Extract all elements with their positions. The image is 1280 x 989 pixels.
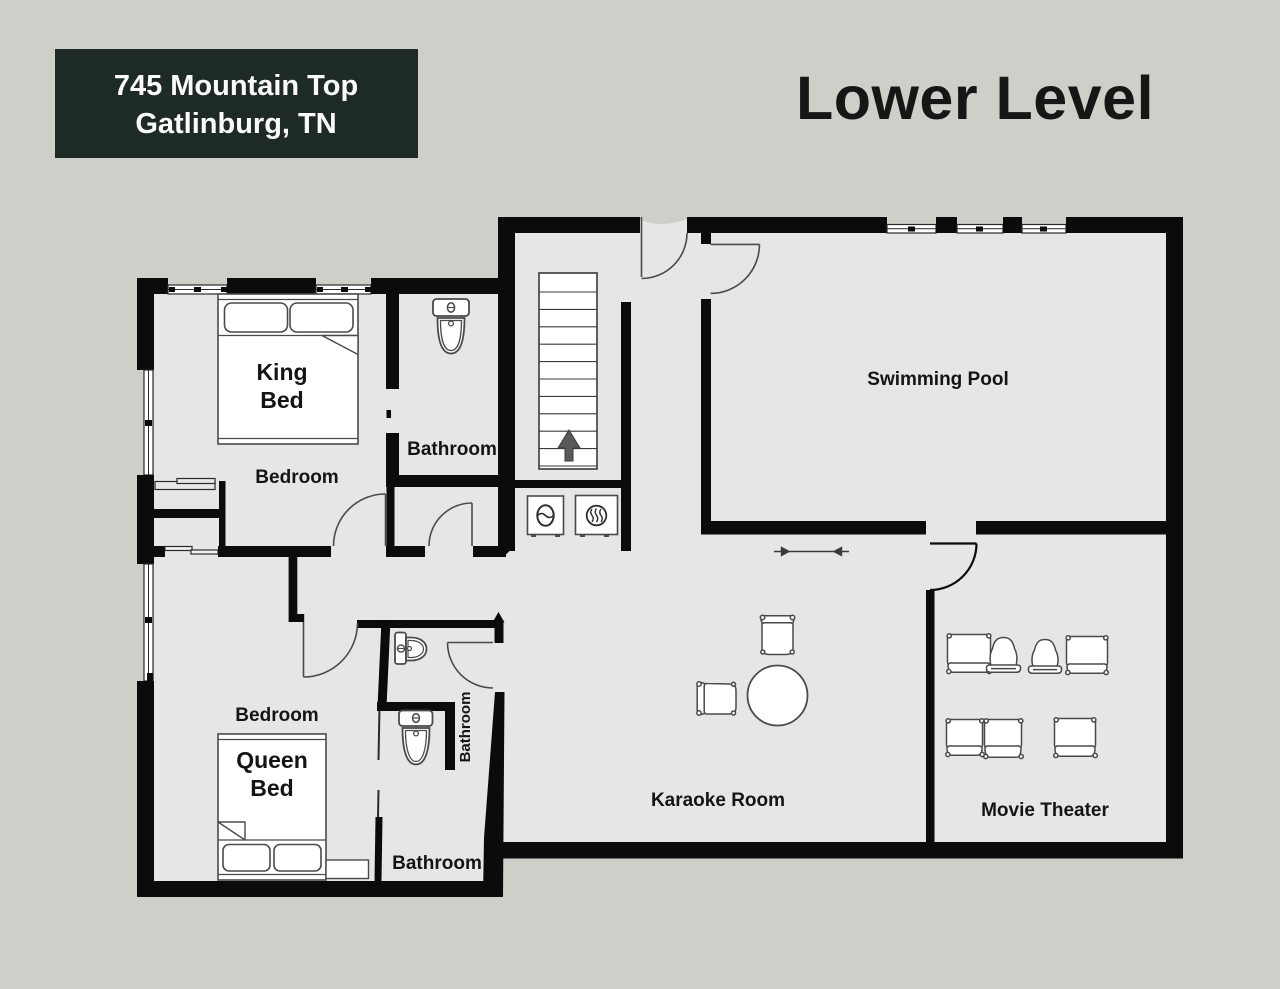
svg-text:Swimming Pool: Swimming Pool [867, 369, 1008, 390]
svg-text:Bathroom: Bathroom [457, 692, 474, 763]
svg-text:Lower Level: Lower Level [796, 64, 1154, 132]
svg-text:Queen: Queen [236, 747, 308, 773]
svg-text:Bedroom: Bedroom [235, 705, 318, 726]
svg-text:745 Mountain Top: 745 Mountain Top [114, 70, 358, 102]
svg-text:Movie Theater: Movie Theater [981, 800, 1109, 821]
svg-text:Bedroom: Bedroom [255, 467, 338, 488]
svg-text:Bathroom: Bathroom [407, 439, 497, 460]
svg-text:Bathroom: Bathroom [392, 853, 482, 874]
svg-text:Bed: Bed [260, 387, 303, 413]
svg-text:Gatlinburg, TN: Gatlinburg, TN [135, 108, 336, 140]
svg-text:Bed: Bed [250, 775, 293, 801]
svg-text:Karaoke Room: Karaoke Room [651, 790, 785, 811]
svg-text:King: King [256, 359, 307, 385]
